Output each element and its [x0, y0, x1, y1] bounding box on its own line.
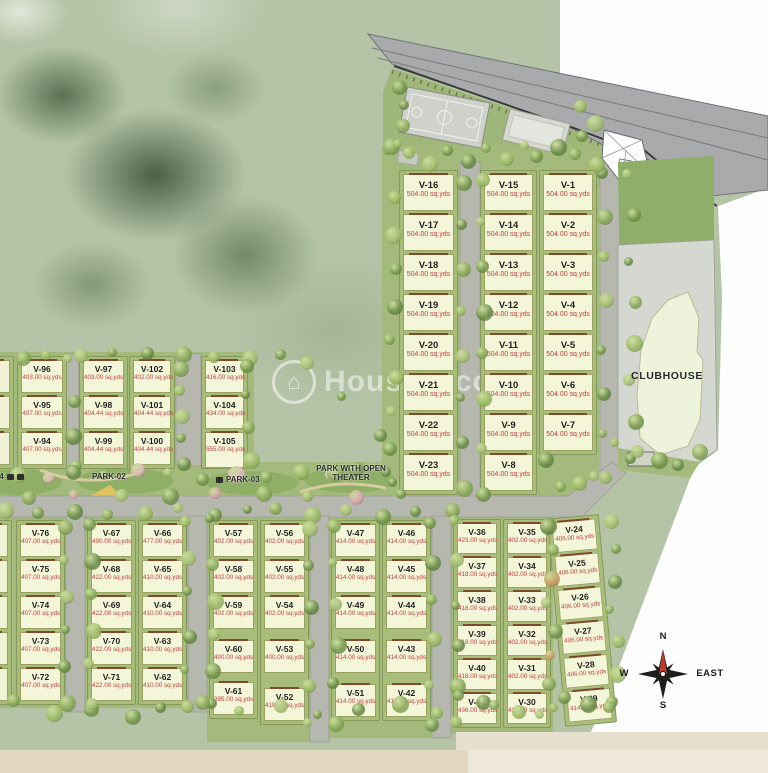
play-equipment-icon [7, 474, 14, 480]
plot-V-21: V-21504.00 sq.yds [403, 374, 454, 411]
plot-V-41: V-41436.00 sq.yds [457, 693, 497, 724]
plot-V-56: V-56402.00 sq.yds [264, 524, 305, 557]
plot-area: 402.00 sq.yds [265, 574, 304, 581]
compass-east-label: EAST [692, 668, 728, 679]
plot-id: V-64 [143, 601, 182, 610]
plot-id: V-45 [387, 565, 426, 574]
plot-id: V-62 [143, 673, 182, 682]
plot-area: 404.44 sq.yds [84, 410, 123, 417]
plot-area: 418.00 sq.yds [458, 605, 496, 612]
plot-id: V-31 [508, 664, 546, 673]
plot-id: V-73 [21, 637, 60, 646]
plot-id: V-12 [485, 301, 532, 311]
plot-V-71: V-71422.00 sq.yds [91, 668, 132, 701]
plot-id: V-67 [92, 529, 131, 538]
plot-area: 414.00 sq.yds [336, 610, 375, 617]
plot-id: V-34 [508, 562, 546, 571]
plot-id: V-65 [143, 565, 182, 574]
plot-V-9: V-9504.00 sq.yds [484, 414, 533, 451]
plot-V-18: V-18504.00 sq.yds [403, 254, 454, 291]
plot-area: 418.00 sq.yds [458, 571, 496, 578]
plot-V-14: V-14504.00 sq.yds [484, 214, 533, 251]
plot-area: 402.00 sq.yds [508, 639, 546, 646]
plot-id: V-100 [134, 437, 170, 446]
plot-V-94: V-94407.00 sq.yds [21, 432, 63, 465]
plot-area: 423.00 sq.yds [458, 537, 496, 544]
plot-V-68: V-68422.00 sq.yds [91, 560, 132, 593]
plot-area: 418.00 sq.yds [458, 639, 496, 646]
plot-column: V-16504.00 sq.ydsV-17504.00 sq.ydsV-1850… [399, 170, 458, 495]
plot-area: 436.00 sq.yds [458, 707, 496, 714]
park-02-label: PARK-02 [92, 472, 126, 481]
plot-area: 407.00 sq.yds [21, 682, 60, 689]
plot-V-51: V-51414.00 sq.yds [335, 684, 376, 717]
clubhouse-label: CLUBHOUSE [620, 370, 714, 382]
plot-column: V-66477.00 sq.ydsV-65410.00 sq.ydsV-6441… [138, 520, 187, 705]
plot-area: 403.00 sq.yds [84, 374, 123, 381]
plot-V-58: V-58402.00 sq.yds [213, 560, 254, 593]
plot-id: V-18 [404, 261, 453, 271]
plot-id: V-38 [458, 596, 496, 605]
plot-V-50: V-50414.00 sq.yds [335, 640, 376, 673]
compass-north-label: N [655, 631, 671, 642]
plot-area: 477.00 sq.yds [143, 538, 182, 545]
plot-area: 395.00 sq.yds [214, 696, 253, 703]
plot-V-65: V-65410.00 sq.yds [142, 560, 183, 593]
plot-area: 504.00 sq.yds [544, 231, 592, 239]
plot-area: 504.00 sq.yds [404, 271, 453, 279]
plot-id: V-22 [404, 421, 453, 431]
plot-id: V-95 [22, 401, 62, 410]
plot-id: V-94 [22, 437, 62, 446]
plot-area: 422.00 sq.yds [92, 610, 131, 617]
plot-id: V-102 [134, 365, 170, 374]
plot-area: 407.00 sq.yds [21, 538, 60, 545]
plot-area: 414.00 sq.yds [387, 610, 426, 617]
plot-column [0, 356, 14, 469]
plot-id: V-75 [21, 565, 60, 574]
plot-V-63: V-63410.00 sq.yds [142, 632, 183, 665]
plot-V-30: V-30414.00 sq.yds [507, 693, 547, 724]
plot-V-25: V-25406.00 sq.yds [554, 552, 601, 587]
plot-V-61: V-61395.00 sq.yds [213, 682, 254, 715]
plot-id: V-72 [21, 673, 60, 682]
plot-id: V-4 [544, 301, 592, 311]
plot-area: 402.00 sq.yds [508, 673, 546, 680]
plot-column: V-36423.00 sq.ydsV-37418.00 sq.ydsV-3841… [453, 519, 501, 728]
plot-area: 402.00 sq.yds [508, 605, 546, 612]
plot-id: V-36 [458, 528, 496, 537]
plot-area: 410.00 sq.yds [143, 646, 182, 653]
plot-area: 504.00 sq.yds [485, 431, 532, 439]
plot-area: 555.00 sq.yds [206, 446, 243, 453]
plot-id: V-70 [92, 637, 131, 646]
plot-id: V-105 [206, 437, 243, 446]
plot-column: V-47414.00 sq.ydsV-48414.00 sq.ydsV-4941… [331, 520, 380, 721]
plot-area: 504.00 sq.yds [485, 471, 532, 479]
plot-V-97: V-97403.00 sq.yds [83, 360, 124, 393]
compass-south-label: S [655, 700, 671, 711]
plot-V-75: V-75407.00 sq.yds [20, 560, 61, 593]
plot-area: 407.00 sq.yds [21, 610, 60, 617]
plot-column: V-96403.00 sq.ydsV-95407.00 sq.ydsV-9440… [17, 356, 67, 469]
play-equipment-icon [216, 477, 223, 483]
plot-area: 422.00 sq.yds [92, 646, 131, 653]
plot-V-2: V-2504.00 sq.yds [543, 214, 593, 251]
plot-V-11: V-11504.00 sq.yds [484, 334, 533, 371]
plot-clipped [0, 596, 8, 629]
plot-area: 410.00 sq.yds [143, 610, 182, 617]
plot-V-52: V-52418.00 sq.yds [264, 688, 305, 721]
plot-V-39: V-39418.00 sq.yds [457, 625, 497, 656]
plot-id: V-63 [143, 637, 182, 646]
plot-area: 400.00 sq.yds [214, 654, 253, 661]
plot-area: 504.00 sq.yds [485, 391, 532, 399]
park-03-text: PARK-03 [226, 475, 260, 484]
plot-V-46: V-46414.00 sq.yds [386, 524, 427, 557]
plot-column: V-24406.00 sq.ydsV-25406.00 sq.ydsV-2640… [547, 514, 617, 727]
plot-column: V-56402.00 sq.ydsV-55402.00 sq.ydsV-5440… [260, 520, 309, 725]
plot-id: V-68 [92, 565, 131, 574]
plot-V-42: V-42414.00 sq.yds [386, 684, 427, 717]
plot-area: 414.00 sq.yds [508, 707, 546, 714]
plot-id: V-54 [265, 601, 304, 610]
plot-V-98: V-98404.44 sq.yds [83, 396, 124, 429]
plot-V-96: V-96403.00 sq.yds [21, 360, 63, 393]
plot-id: V-39 [458, 630, 496, 639]
plot-V-100: V-100404.44 sq.yds [133, 432, 171, 465]
plot-V-37: V-37418.00 sq.yds [457, 557, 497, 588]
plot-area: 403.00 sq.yds [22, 374, 62, 381]
plot-area: 414.00 sq.yds [387, 574, 426, 581]
plot-area: 402.00 sq.yds [214, 610, 253, 617]
plot-clipped [0, 360, 10, 393]
plot-area: 418.00 sq.yds [458, 673, 496, 680]
park-02-text: PARK-02 [92, 472, 126, 481]
plot-V-66: V-66477.00 sq.yds [142, 524, 183, 557]
plot-area: 414.00 sq.yds [336, 538, 375, 545]
plot-area: 504.00 sq.yds [404, 431, 453, 439]
plot-V-28: V-28406.00 sq.yds [563, 654, 610, 689]
plot-id: V-48 [336, 565, 375, 574]
plot-V-101: V-101404.44 sq.yds [133, 396, 171, 429]
plot-column: V-103416.00 sq.ydsV-104434.00 sq.ydsV-10… [201, 356, 248, 469]
plot-area: 504.00 sq.yds [404, 191, 453, 199]
plot-area: 418.00 sq.yds [265, 702, 304, 709]
plot-area: 504.00 sq.yds [544, 391, 592, 399]
plot-id: V-8 [485, 461, 532, 471]
plot-V-27: V-27406.00 sq.yds [560, 620, 607, 655]
plot-area: 402.00 sq.yds [214, 538, 253, 545]
plot-V-45: V-45414.00 sq.yds [386, 560, 427, 593]
plot-column: V-67490.00 sq.ydsV-68422.00 sq.ydsV-6942… [87, 520, 136, 705]
plot-id: V-97 [84, 365, 123, 374]
plot-id: V-50 [336, 645, 375, 654]
plot-id: V-35 [508, 528, 546, 537]
plot-V-70: V-70422.00 sq.yds [91, 632, 132, 665]
plot-V-7: V-7504.00 sq.yds [543, 414, 593, 451]
plot-area: 404.44 sq.yds [134, 410, 170, 417]
plot-id: V-15 [485, 181, 532, 191]
plot-clipped [0, 432, 10, 465]
plot-V-32: V-32402.00 sq.yds [507, 625, 547, 656]
plot-area: 490.00 sq.yds [92, 538, 131, 545]
plot-area: 416.00 sq.yds [206, 374, 243, 381]
plot-V-48: V-48414.00 sq.yds [335, 560, 376, 593]
plot-V-26: V-26406.00 sq.yds [557, 586, 604, 621]
plot-id: V-6 [544, 381, 592, 391]
plot-column: V-97403.00 sq.ydsV-98404.44 sq.ydsV-9940… [79, 356, 128, 469]
plot-area: 434.00 sq.yds [206, 410, 243, 417]
plot-V-64: V-64410.00 sq.yds [142, 596, 183, 629]
park-04-label: PARK-04 [0, 472, 24, 481]
plot-V-8: V-8504.00 sq.yds [484, 454, 533, 491]
plot-area: 504.00 sq.yds [485, 271, 532, 279]
plot-V-43: V-43414.00 sq.yds [386, 640, 427, 673]
plot-area: 407.00 sq.yds [22, 410, 62, 417]
plot-area: 410.00 sq.yds [143, 682, 182, 689]
plot-V-5: V-5504.00 sq.yds [543, 334, 593, 371]
plot-V-10: V-10504.00 sq.yds [484, 374, 533, 411]
plot-area: 504.00 sq.yds [404, 231, 453, 239]
plot-area: 410.00 sq.yds [143, 574, 182, 581]
plot-id: V-17 [404, 221, 453, 231]
plot-column: V-35402.00 sq.ydsV-34402.00 sq.ydsV-3340… [503, 519, 551, 728]
plot-id: V-21 [404, 381, 453, 391]
plot-area: 404.44 sq.yds [84, 446, 123, 453]
plot-area: 504.00 sq.yds [485, 191, 532, 199]
compass-west-label: W [616, 668, 632, 679]
plot-area: 504.00 sq.yds [544, 271, 592, 279]
plot-id: V-49 [336, 601, 375, 610]
plot-V-55: V-55402.00 sq.yds [264, 560, 305, 593]
plot-area: 407.00 sq.yds [21, 646, 60, 653]
plot-area: 504.00 sq.yds [404, 471, 453, 479]
plot-V-1: V-1504.00 sq.yds [543, 174, 593, 211]
plot-V-76: V-76407.00 sq.yds [20, 524, 61, 557]
plot-area: 414.00 sq.yds [387, 654, 426, 661]
plot-area: 504.00 sq.yds [544, 191, 592, 199]
plot-V-24: V-24406.00 sq.yds [551, 518, 598, 553]
plot-V-35: V-35402.00 sq.yds [507, 523, 547, 554]
plot-id: V-44 [387, 601, 426, 610]
plot-id: V-52 [265, 693, 304, 702]
plot-V-104: V-104434.00 sq.yds [205, 396, 244, 429]
plot-area: 504.00 sq.yds [404, 391, 453, 399]
plot-id: V-99 [84, 437, 123, 446]
plot-id: V-71 [92, 673, 131, 682]
plot-id: V-69 [92, 601, 131, 610]
plot-area: 422.00 sq.yds [92, 574, 131, 581]
plot-id: V-96 [22, 365, 62, 374]
plot-area: 407.00 sq.yds [21, 574, 60, 581]
plot-id: V-5 [544, 341, 592, 351]
plot-area: 504.00 sq.yds [544, 431, 592, 439]
plot-V-73: V-73407.00 sq.yds [20, 632, 61, 665]
plot-area: 414.00 sq.yds [336, 698, 375, 705]
plot-V-95: V-95407.00 sq.yds [21, 396, 63, 429]
plot-area: 504.00 sq.yds [404, 351, 453, 359]
plot-area: 414.00 sq.yds [387, 698, 426, 705]
plot-id: V-11 [485, 341, 532, 351]
plot-V-36: V-36423.00 sq.yds [457, 523, 497, 554]
plot-id: V-66 [143, 529, 182, 538]
plot-V-72: V-72407.00 sq.yds [20, 668, 61, 701]
plot-column [0, 520, 12, 705]
plot-id: V-2 [544, 221, 592, 231]
plot-area: 407.00 sq.yds [22, 446, 62, 453]
plot-id: V-46 [387, 529, 426, 538]
park-04-text: PARK-04 [0, 472, 4, 481]
plot-V-17: V-17504.00 sq.yds [403, 214, 454, 251]
plot-V-69: V-69422.00 sq.yds [91, 596, 132, 629]
plot-column: V-57402.00 sq.ydsV-58402.00 sq.ydsV-5940… [209, 520, 258, 719]
plot-clipped [0, 524, 8, 557]
plot-V-44: V-44414.00 sq.yds [386, 596, 427, 629]
plot-id: V-76 [21, 529, 60, 538]
plot-id: V-98 [84, 401, 123, 410]
plot-id: V-41 [458, 698, 496, 707]
plot-area: 504.00 sq.yds [544, 351, 592, 359]
plot-id: V-53 [265, 645, 304, 654]
plot-column: V-46414.00 sq.ydsV-45414.00 sq.ydsV-4441… [382, 520, 431, 721]
plot-id: V-103 [206, 365, 243, 374]
plot-id: V-37 [458, 562, 496, 571]
plot-id: V-61 [214, 687, 253, 696]
plot-id: V-16 [404, 181, 453, 191]
plot-V-22: V-22504.00 sq.yds [403, 414, 454, 451]
plot-id: V-56 [265, 529, 304, 538]
plot-V-12: V-12504.00 sq.yds [484, 294, 533, 331]
plot-V-40: V-40418.00 sq.yds [457, 659, 497, 690]
plot-V-4: V-4504.00 sq.yds [543, 294, 593, 331]
plot-V-33: V-33402.00 sq.yds [507, 591, 547, 622]
plot-V-23: V-23504.00 sq.yds [403, 454, 454, 491]
plot-id: V-57 [214, 529, 253, 538]
park-03-label: PARK-03 [216, 475, 260, 484]
plot-V-103: V-103416.00 sq.yds [205, 360, 244, 393]
plot-area: 414.00 sq.yds [336, 574, 375, 581]
plots-layer: V-16504.00 sq.ydsV-17504.00 sq.ydsV-1850… [0, 0, 768, 773]
plot-V-59: V-59402.00 sq.yds [213, 596, 254, 629]
plot-id: V-51 [336, 689, 375, 698]
plot-clipped [0, 668, 8, 701]
plot-id: V-7 [544, 421, 592, 431]
plot-id: V-59 [214, 601, 253, 610]
plot-area: 402.00 sq.yds [134, 374, 170, 381]
plot-column: V-102402.00 sq.ydsV-101404.44 sq.ydsV-10… [129, 356, 175, 469]
plot-id: V-55 [265, 565, 304, 574]
plot-area: 422.00 sq.yds [92, 682, 131, 689]
plot-V-29: V-29414.00 sq.yds [566, 688, 613, 723]
site-plan-canvas: ⌂ Housiey.com V-16504.00 sq.ydsV-17504.0… [0, 0, 768, 773]
plot-area: 504.00 sq.yds [485, 351, 532, 359]
plot-area: 402.00 sq.yds [508, 537, 546, 544]
plot-clipped [0, 632, 8, 665]
plot-id: V-13 [485, 261, 532, 271]
plot-V-6: V-6504.00 sq.yds [543, 374, 593, 411]
plot-id: V-40 [458, 664, 496, 673]
plot-V-67: V-67490.00 sq.yds [91, 524, 132, 557]
plot-id: V-20 [404, 341, 453, 351]
plot-V-60: V-60400.00 sq.yds [213, 640, 254, 673]
plot-area: 414.00 sq.yds [387, 538, 426, 545]
plot-V-34: V-34402.00 sq.yds [507, 557, 547, 588]
plot-id: V-42 [387, 689, 426, 698]
plot-clipped [0, 560, 8, 593]
plot-V-16: V-16504.00 sq.yds [403, 174, 454, 211]
plot-V-20: V-20504.00 sq.yds [403, 334, 454, 371]
plot-area: 504.00 sq.yds [485, 231, 532, 239]
plot-id: V-104 [206, 401, 243, 410]
plot-V-62: V-62410.00 sq.yds [142, 668, 183, 701]
plot-column: V-1504.00 sq.ydsV-2504.00 sq.ydsV-3504.0… [539, 170, 597, 455]
plot-V-13: V-13504.00 sq.yds [484, 254, 533, 291]
plot-id: V-58 [214, 565, 253, 574]
plot-id: V-33 [508, 596, 546, 605]
plot-V-105: V-105555.00 sq.yds [205, 432, 244, 468]
plot-id: V-14 [485, 221, 532, 231]
plot-V-19: V-19504.00 sq.yds [403, 294, 454, 331]
plot-V-3: V-3504.00 sq.yds [543, 254, 593, 291]
plot-V-38: V-38418.00 sq.yds [457, 591, 497, 622]
plot-V-99: V-99404.44 sq.yds [83, 432, 124, 465]
plot-area: 402.00 sq.yds [214, 574, 253, 581]
plot-column: V-76407.00 sq.ydsV-75407.00 sq.ydsV-7440… [16, 520, 65, 705]
plot-V-31: V-31402.00 sq.yds [507, 659, 547, 690]
plot-area: 402.00 sq.yds [508, 571, 546, 578]
plot-id: V-32 [508, 630, 546, 639]
plot-id: V-3 [544, 261, 592, 271]
plot-id: V-74 [21, 601, 60, 610]
park-theater-label: PARK WITH OPEN THEATER [303, 464, 399, 482]
plot-V-54: V-54402.00 sq.yds [264, 596, 305, 629]
plot-id: V-47 [336, 529, 375, 538]
plot-area: 400.00 sq.yds [265, 654, 304, 661]
plot-id: V-1 [544, 181, 592, 191]
plot-area: 504.00 sq.yds [544, 311, 592, 319]
plot-id: V-10 [485, 381, 532, 391]
plot-V-47: V-47414.00 sq.yds [335, 524, 376, 557]
plot-id: V-60 [214, 645, 253, 654]
plot-V-49: V-49414.00 sq.yds [335, 596, 376, 629]
plot-clipped [0, 396, 10, 429]
play-equipment-icon [17, 474, 24, 480]
plot-id: V-23 [404, 461, 453, 471]
plot-V-53: V-53400.00 sq.yds [264, 640, 305, 673]
plot-id: V-19 [404, 301, 453, 311]
plot-area: 402.00 sq.yds [265, 538, 304, 545]
plot-V-74: V-74407.00 sq.yds [20, 596, 61, 629]
plot-id: V-43 [387, 645, 426, 654]
plot-area: 414.00 sq.yds [336, 654, 375, 661]
plot-id: V-9 [485, 421, 532, 431]
plot-id: V-101 [134, 401, 170, 410]
plot-V-102: V-102402.00 sq.yds [133, 360, 171, 393]
plot-area: 504.00 sq.yds [404, 311, 453, 319]
plot-id: V-30 [508, 698, 546, 707]
plot-V-57: V-57402.00 sq.yds [213, 524, 254, 557]
plot-column: V-15504.00 sq.ydsV-14504.00 sq.ydsV-1350… [480, 170, 537, 495]
plot-area: 504.00 sq.yds [485, 311, 532, 319]
plot-V-15: V-15504.00 sq.yds [484, 174, 533, 211]
plot-area: 404.44 sq.yds [134, 446, 170, 453]
plot-area: 402.00 sq.yds [265, 610, 304, 617]
